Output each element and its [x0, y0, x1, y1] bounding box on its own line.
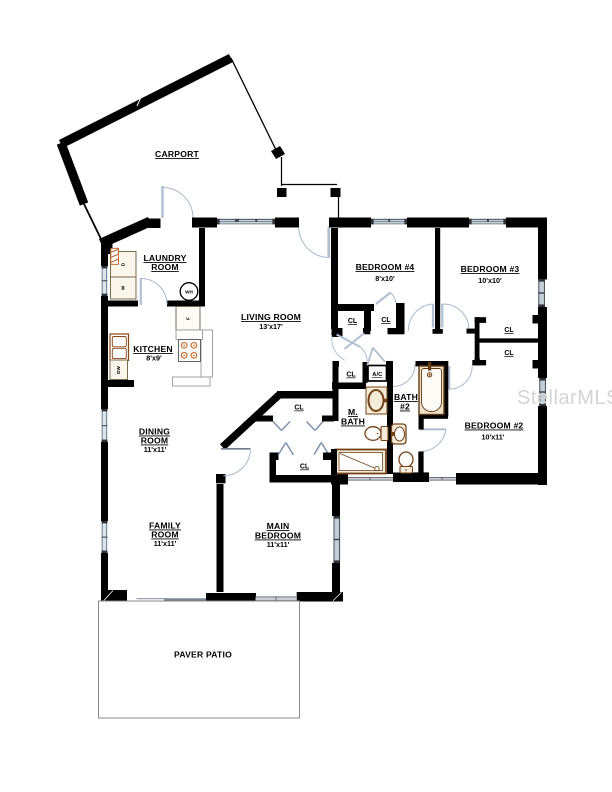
svg-text:LIVING ROOM: LIVING ROOM: [241, 312, 301, 322]
svg-text:BEDROOM #3: BEDROOM #3: [461, 264, 520, 274]
svg-text:CL: CL: [294, 405, 304, 412]
svg-text:BEDROOM: BEDROOM: [255, 531, 301, 541]
svg-text:11'x11': 11'x11': [267, 540, 290, 549]
svg-text:BATH: BATH: [394, 392, 418, 402]
svg-text:11'x11': 11'x11': [154, 539, 177, 548]
svg-text:A/C: A/C: [372, 372, 383, 378]
svg-text:ROOM: ROOM: [141, 436, 169, 446]
svg-text:KITCHEN: KITCHEN: [133, 344, 173, 354]
svg-text:BEDROOM #4: BEDROOM #4: [356, 262, 415, 272]
svg-text:CL: CL: [346, 372, 356, 379]
svg-text:13'x17': 13'x17': [259, 322, 283, 331]
svg-text:CL: CL: [381, 317, 391, 324]
svg-text:ROOM: ROOM: [151, 530, 179, 540]
svg-text:CL: CL: [504, 327, 514, 334]
svg-text:CL: CL: [504, 350, 514, 357]
svg-text:PAVER PATIO: PAVER PATIO: [174, 650, 232, 660]
svg-text:11'x11': 11'x11': [144, 445, 167, 454]
svg-text:#2: #2: [400, 402, 410, 412]
svg-text:MAIN: MAIN: [267, 521, 290, 531]
svg-text:DW: DW: [116, 366, 121, 374]
svg-text:M.: M.: [348, 407, 358, 417]
svg-text:8'x10': 8'x10': [375, 274, 395, 283]
svg-text:WH: WH: [185, 290, 193, 295]
svg-text:StellarMLS: StellarMLS: [517, 387, 612, 409]
svg-text:ROOM: ROOM: [151, 262, 179, 272]
svg-text:10'x10': 10'x10': [478, 276, 502, 285]
svg-text:8'x9': 8'x9': [146, 354, 162, 363]
svg-text:10'x11': 10'x11': [481, 433, 504, 442]
svg-text:CL: CL: [348, 318, 358, 325]
svg-text:BEDROOM #2: BEDROOM #2: [465, 421, 524, 431]
svg-text:BATH: BATH: [341, 417, 365, 427]
svg-text:CARPORT: CARPORT: [155, 149, 199, 159]
svg-text:CL: CL: [300, 464, 310, 471]
svg-text:F: F: [186, 317, 191, 320]
svg-text:W: W: [121, 285, 126, 290]
